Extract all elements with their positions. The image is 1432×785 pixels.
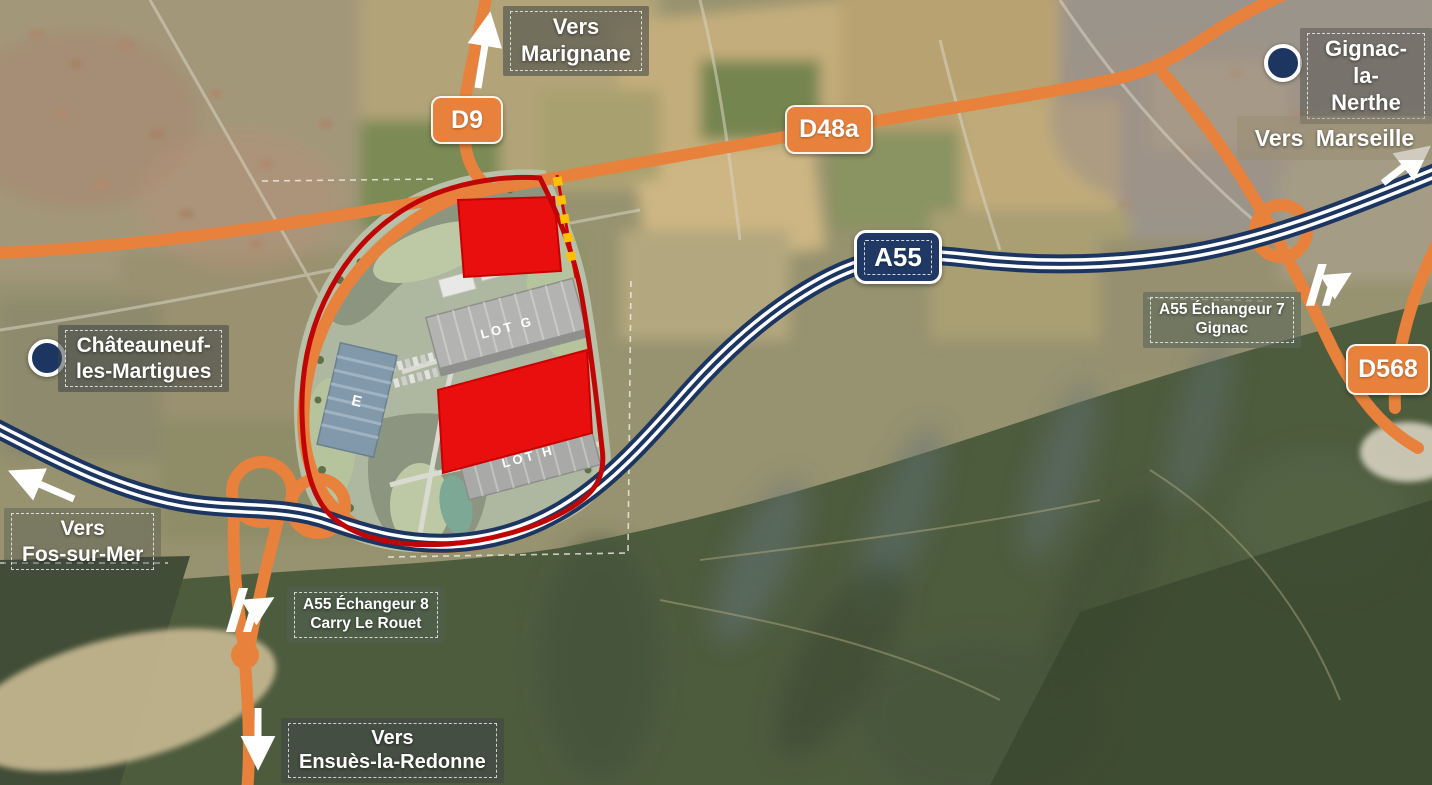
gignac-line1: Gignac-la- [1318, 36, 1414, 90]
vers-ensues-line1: Vers [299, 726, 486, 750]
badge-d568: D568 [1346, 344, 1430, 395]
orange-roads [0, 0, 1432, 785]
badge-d48a: D48a [785, 105, 873, 154]
badge-d9: D9 [431, 96, 503, 144]
road-ensues [245, 662, 249, 785]
label-vers-fos: Vers Fos-sur-Mer [4, 508, 161, 575]
map-canvas: E LOT G [0, 0, 1432, 785]
echangeur8-line2: Carry Le Rouet [303, 615, 429, 634]
map-overlay: E LOT G [0, 0, 1432, 785]
ramp-west [249, 520, 278, 648]
label-gignac: Gignac-la- Nerthe [1300, 28, 1432, 124]
vers-marignane-line1: Vers [521, 14, 631, 41]
vers-ensues-line2: Ensuès-la-Redonne [299, 750, 486, 774]
vers-fos-line2: Fos-sur-Mer [22, 542, 143, 568]
label-chateauneuf: Châteauneuf- les-Martigues [58, 325, 229, 392]
echangeur8-line1: A55 Échangeur 8 [303, 596, 429, 615]
red-lot-north [458, 197, 561, 277]
label-vers-ensues: Vers Ensuès-la-Redonne [281, 718, 504, 783]
city-dot-gignac [1264, 44, 1302, 82]
echangeur7-line2: Gignac [1159, 320, 1285, 339]
roundabout [231, 641, 259, 669]
chateauneuf-line2: les-Martigues [76, 359, 211, 385]
chateauneuf-line1: Châteauneuf- [76, 333, 211, 359]
badge-a55: A55 [854, 230, 942, 284]
vers-marignane-line2: Marignane [521, 41, 631, 68]
vers-fos-line1: Vers [22, 516, 143, 542]
echangeur7-line1: A55 Échangeur 7 [1159, 301, 1285, 320]
road-d9-north [464, 0, 487, 186]
label-echangeur-7: A55 Échangeur 7 Gignac [1143, 292, 1301, 348]
gignac-line2: Nerthe [1318, 90, 1414, 117]
label-vers-marignane: Vers Marignane [503, 6, 649, 76]
vers-marseille-text: Vers Marseille [1237, 116, 1432, 160]
badge-a55-text: A55 [864, 240, 932, 275]
label-vers-marseille: Vers Marseille [1237, 116, 1432, 160]
label-echangeur-8: A55 Échangeur 8 Carry Le Rouet [287, 587, 445, 643]
motorway-exit-icon-e7 [1306, 264, 1346, 306]
arrow-fos [16, 474, 74, 499]
